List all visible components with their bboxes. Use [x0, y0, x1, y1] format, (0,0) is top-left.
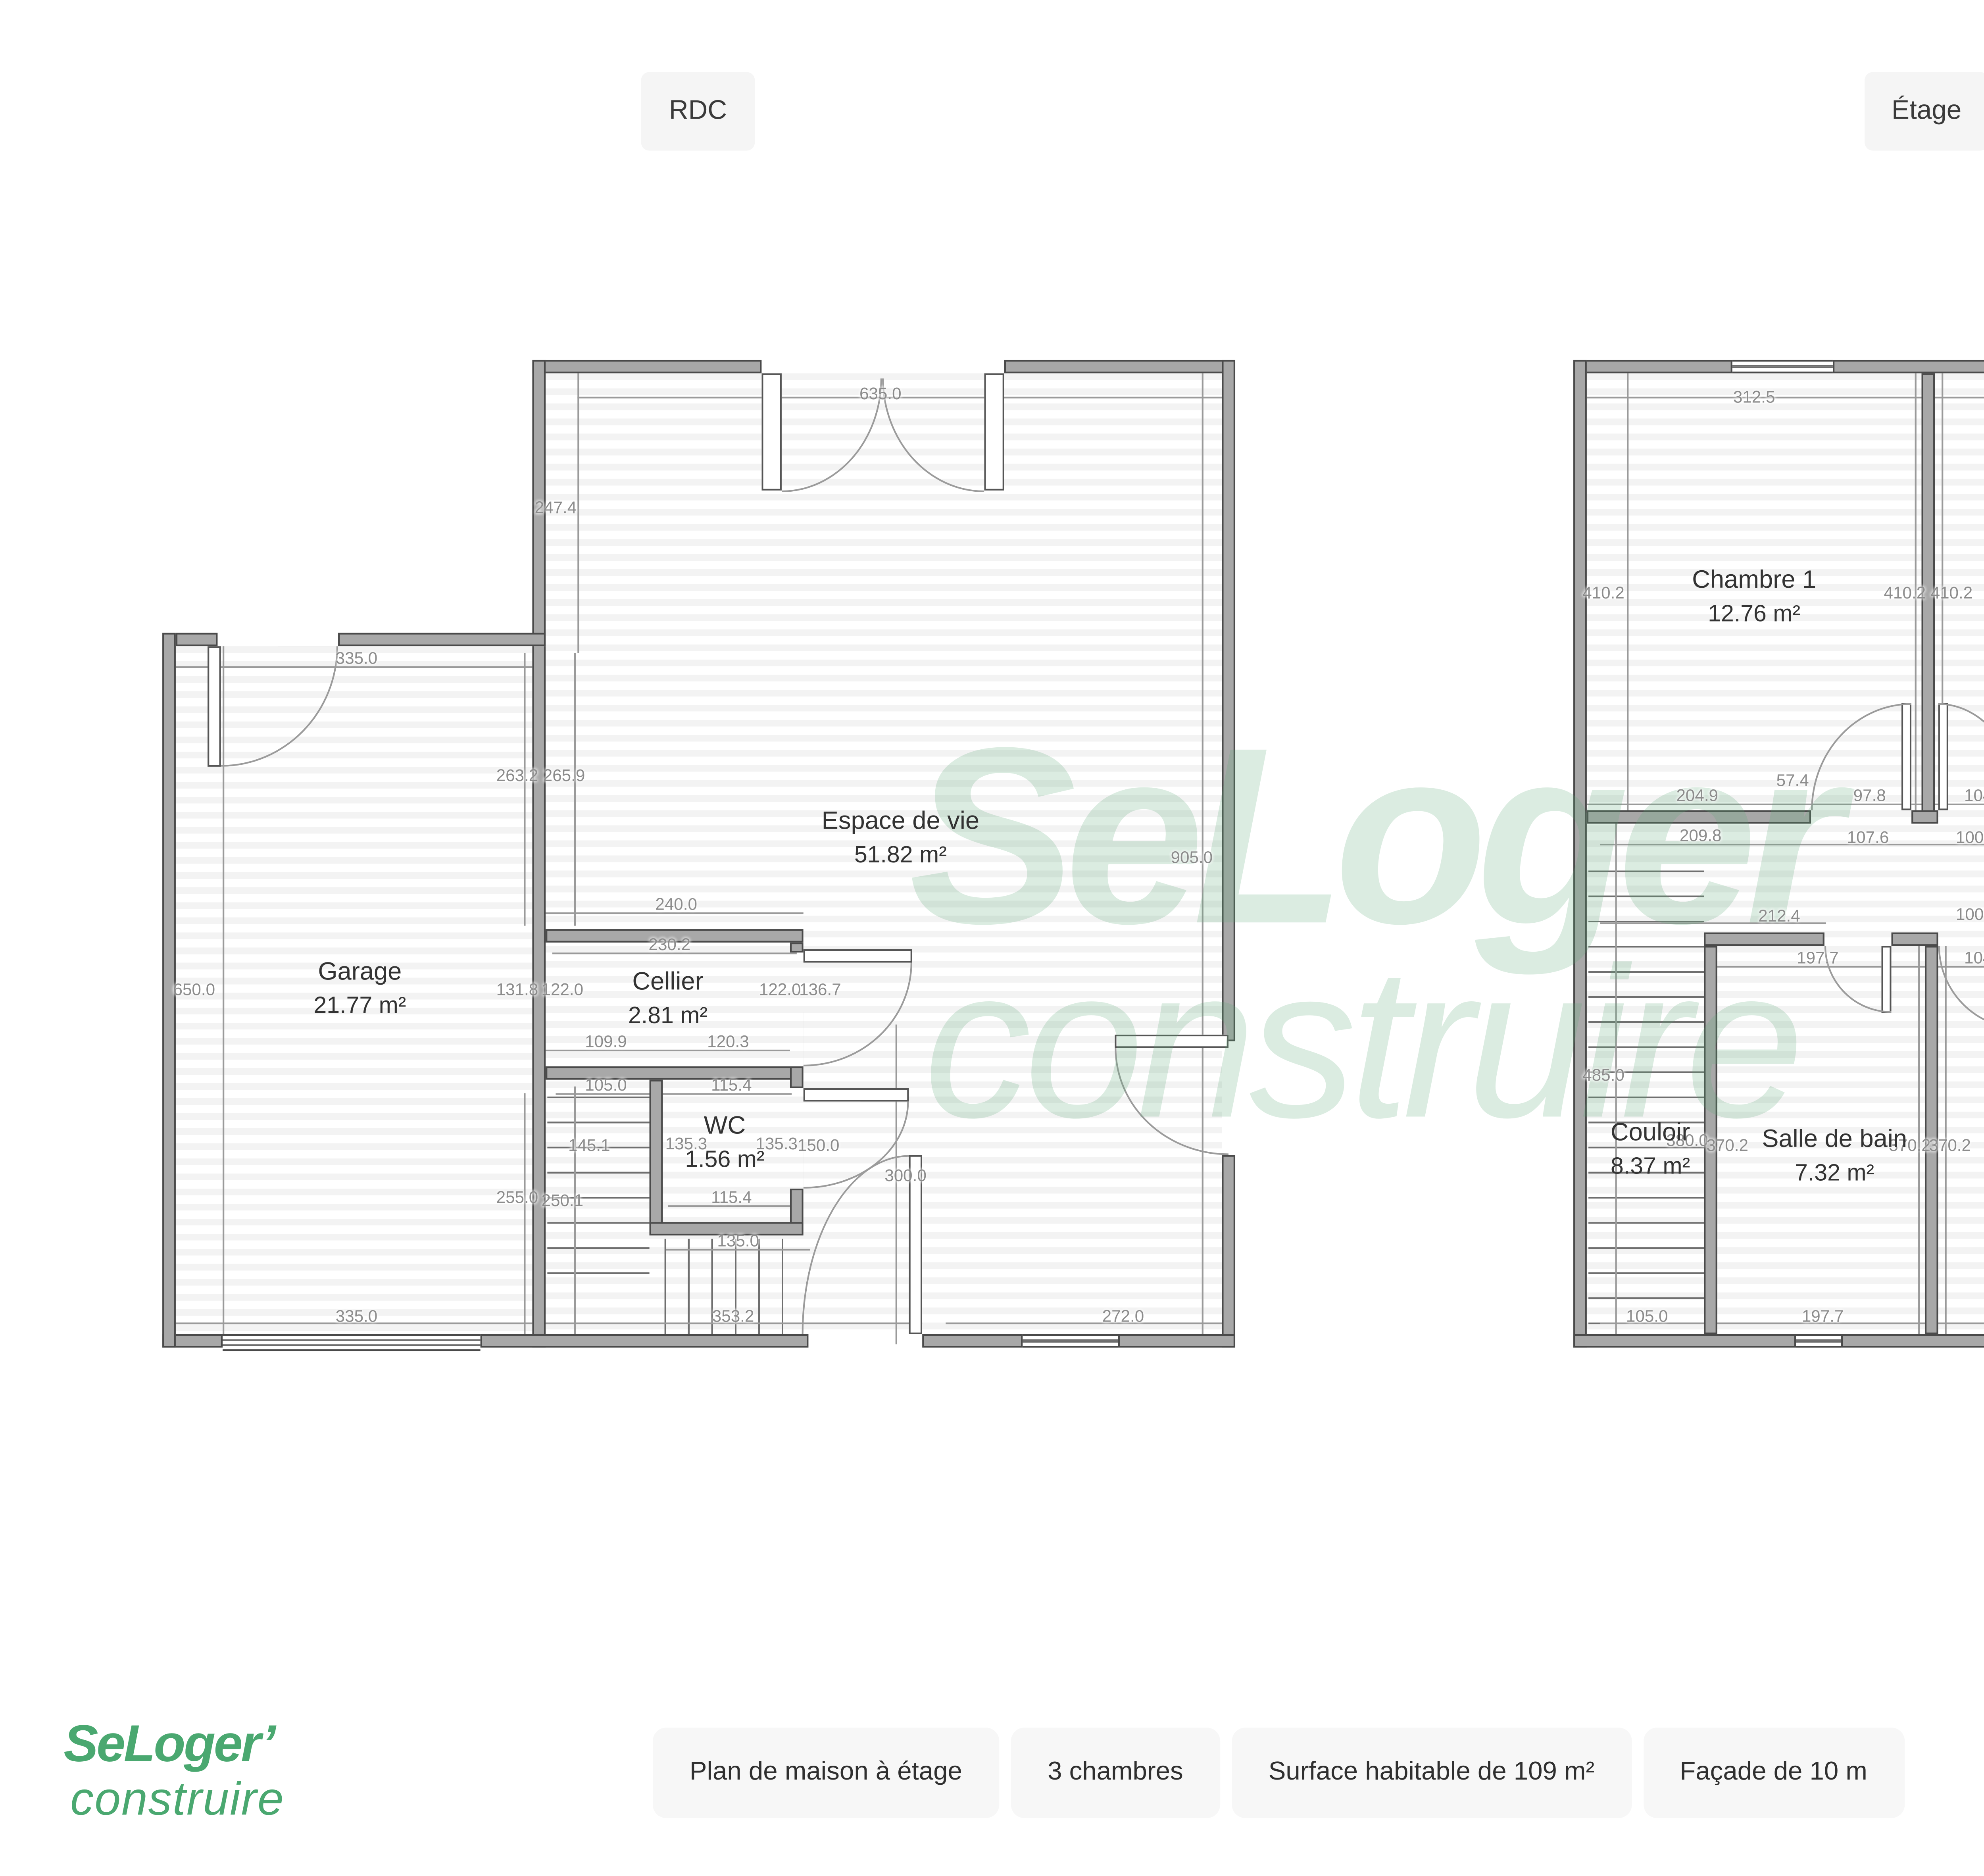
wall [1573, 1334, 1796, 1348]
door-leaf [761, 373, 782, 491]
room-name: Espace de vie [822, 806, 979, 838]
wall [790, 943, 804, 952]
room-area: 51.82 m² [822, 838, 979, 869]
dim-line [1600, 844, 1984, 845]
wall [1573, 360, 1587, 1348]
dim-label: 100.0 [1956, 829, 1984, 848]
wall [1892, 933, 1938, 946]
dim-label: 240.0 [655, 897, 697, 915]
room-area: 1.56 m² [685, 1143, 764, 1174]
plan-info-badges: Plan de maison à étage3 chambresSurface … [653, 1728, 1904, 1818]
dim-label: 122.0 [542, 982, 584, 1000]
window [1796, 1334, 1841, 1348]
room-area: 12.76 m² [1692, 597, 1816, 627]
floor-chip-etage: Étage [1865, 72, 1984, 150]
dim-label: 115.4 [711, 1189, 752, 1208]
wall [1841, 1334, 1984, 1348]
dim-label: 335.0 [336, 650, 378, 669]
dim-label: 109.9 [585, 1034, 627, 1052]
dim-label: 250.1 [542, 1193, 584, 1211]
dim-label: 197.7 [1797, 950, 1839, 968]
dim-label: 97.8 [1853, 788, 1886, 806]
dim-label: 272.0 [1102, 1308, 1144, 1327]
dim-line [1935, 1322, 1984, 1324]
room-area: 8.37 m² [1611, 1149, 1690, 1180]
door-leaf [804, 949, 912, 963]
room-label: WC1.56 m² [685, 1110, 764, 1173]
wall [922, 1334, 1023, 1348]
garage-door [223, 1334, 481, 1351]
door-leaf [804, 1088, 909, 1102]
room-name: Garage [313, 956, 406, 989]
dim-line [577, 373, 579, 653]
dim-label: 485.0 [1582, 1067, 1624, 1085]
dim-label: 335.0 [336, 1308, 378, 1327]
dim-label: 136.7 [799, 982, 841, 1000]
room-area: 7.32 m² [1762, 1156, 1907, 1187]
dim-line [546, 1050, 790, 1051]
room-label: Chambre 112.76 m² [1692, 564, 1816, 627]
dim-label: 353.2 [712, 1308, 754, 1327]
dim-label: 122.0 [759, 982, 801, 1000]
info-badge: Plan de maison à étage [653, 1728, 999, 1818]
dim-label: 57.4 [1776, 773, 1809, 791]
dim-label: 265.9 [543, 768, 585, 786]
dim-label: 204.9 [1676, 788, 1718, 806]
dim-label: 247.4 [535, 500, 577, 518]
room-label: Cellier2.81 m² [628, 966, 707, 1029]
door-leaf [208, 646, 221, 767]
door-leaf [984, 373, 1004, 491]
dim-label: 150.0 [798, 1137, 840, 1156]
floorplan-canvas: RDC Étage [0, 0, 1984, 1876]
room-name: WC [685, 1110, 764, 1143]
wall [1587, 810, 1811, 824]
room-label: Espace de vie51.82 m² [822, 806, 979, 869]
dim-label: 410.2 [1582, 585, 1624, 603]
wall [532, 360, 761, 373]
dim-line [524, 653, 525, 926]
dim-label: 635.0 [859, 386, 902, 404]
wall [1911, 810, 1938, 824]
dim-label: 107.6 [1847, 829, 1889, 848]
room-label: Couloir8.37 m² [1611, 1117, 1690, 1180]
dim-label: 145.1 [568, 1137, 610, 1156]
dim-label: 100.0 [1956, 906, 1984, 925]
dim-label: 115.4 [711, 1077, 752, 1095]
dim-label: 905.0 [1171, 850, 1213, 868]
logo-line1: SeLoger’ [63, 1718, 285, 1770]
wall [1222, 1155, 1235, 1348]
dim-label: 410.2 [1931, 585, 1973, 603]
window [1732, 360, 1833, 373]
floor-chip-rdc-label: RDC [669, 96, 727, 127]
room-name: Cellier [628, 966, 707, 999]
dim-label: 370.2 [1706, 1137, 1748, 1156]
dim-line [574, 653, 576, 926]
room-name: Salle de bain [1762, 1124, 1907, 1156]
seloger-construire-logo: SeLoger’ construire [63, 1718, 285, 1823]
wall [1573, 360, 1732, 373]
dim-label: 650.0 [173, 982, 215, 1000]
info-badge: 3 chambres [1011, 1728, 1220, 1818]
wall [176, 633, 217, 646]
dim-label: 135.0 [717, 1233, 759, 1251]
dim-line [946, 1322, 1235, 1324]
wall [1222, 360, 1235, 1041]
dim-label: 410.2 [1884, 585, 1926, 603]
stairs [1588, 870, 1704, 1334]
room-label: Garage21.77 m² [313, 956, 406, 1019]
wall [1704, 933, 1824, 946]
dim-label: 263.2 [496, 768, 538, 786]
wall [650, 1080, 663, 1235]
dim-label: 255.0 [496, 1189, 538, 1208]
door-leaf [1115, 1035, 1228, 1048]
info-badge: Façade de 10 m [1643, 1728, 1904, 1818]
logo-line2: construire [70, 1776, 285, 1823]
dim-line [524, 1093, 525, 1334]
dim-label: 131.8 [496, 982, 538, 1000]
dim-label: 105.0 [585, 1077, 627, 1095]
dim-label: 120.3 [707, 1034, 749, 1052]
room-area: 21.77 m² [313, 989, 406, 1020]
wall [481, 1334, 809, 1348]
dim-label: 209.8 [1680, 828, 1722, 846]
dim-label: 370.2 [1929, 1137, 1971, 1156]
room-area: 2.81 m² [628, 999, 707, 1029]
dim-label: 300.0 [884, 1168, 927, 1186]
stairs [547, 1072, 649, 1281]
floor-chip-etage-label: Étage [1892, 96, 1961, 127]
room-label: Salle de bain7.32 m² [1762, 1124, 1907, 1187]
info-badge: Surface habitable de 109 m² [1232, 1728, 1631, 1818]
dim-label: 230.2 [648, 937, 690, 955]
window [1023, 1334, 1118, 1348]
floor-chip-rdc: RDC [641, 72, 755, 150]
dim-label: 312.5 [1733, 389, 1775, 408]
dim-label: 212.4 [1758, 908, 1800, 926]
dim-label: 104.9 [1964, 950, 1984, 968]
wall [790, 1066, 804, 1088]
room-name: Chambre 1 [1692, 564, 1816, 597]
wall [1833, 360, 1984, 373]
wall [1004, 360, 1235, 373]
dim-label: 105.0 [1626, 1308, 1668, 1327]
wall [1118, 1334, 1235, 1348]
wall [338, 633, 546, 646]
dim-label: 104.9 [1964, 788, 1984, 806]
dim-label: 197.7 [1802, 1308, 1844, 1327]
dim-line [1627, 373, 1628, 810]
room-name: Couloir [1611, 1117, 1690, 1149]
wall [546, 1066, 804, 1080]
